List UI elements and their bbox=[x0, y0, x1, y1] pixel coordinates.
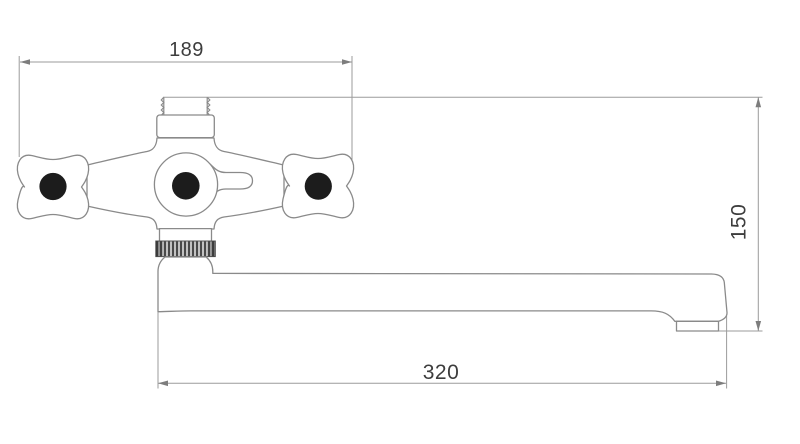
collar-band bbox=[160, 229, 212, 242]
dimension-bottom-length: 320 bbox=[158, 311, 727, 389]
arrowhead-right bbox=[716, 381, 726, 387]
arrowhead-left bbox=[20, 59, 30, 65]
faucet-body bbox=[17, 98, 727, 332]
dimension-label-top-width: 189 bbox=[169, 39, 204, 61]
center-dot bbox=[172, 172, 200, 200]
dimension-label-bottom-length: 320 bbox=[423, 361, 460, 384]
left-handle-dot bbox=[39, 173, 66, 200]
knurled-nut bbox=[156, 241, 216, 257]
spout bbox=[158, 257, 727, 321]
bonnet bbox=[157, 115, 215, 138]
faucet-technical-drawing: 189 150 320 bbox=[0, 0, 800, 444]
right-handle-dot bbox=[305, 173, 332, 200]
arrowhead-down bbox=[756, 321, 762, 331]
arrowhead-up bbox=[756, 97, 762, 107]
arrowhead-right bbox=[342, 59, 352, 65]
dimension-label-right-height: 150 bbox=[728, 204, 751, 241]
drawing-svg: 189 150 320 bbox=[0, 0, 800, 444]
arrowhead-left bbox=[158, 381, 168, 387]
threaded-tailpiece bbox=[157, 98, 215, 138]
spout-outlet bbox=[677, 321, 719, 331]
